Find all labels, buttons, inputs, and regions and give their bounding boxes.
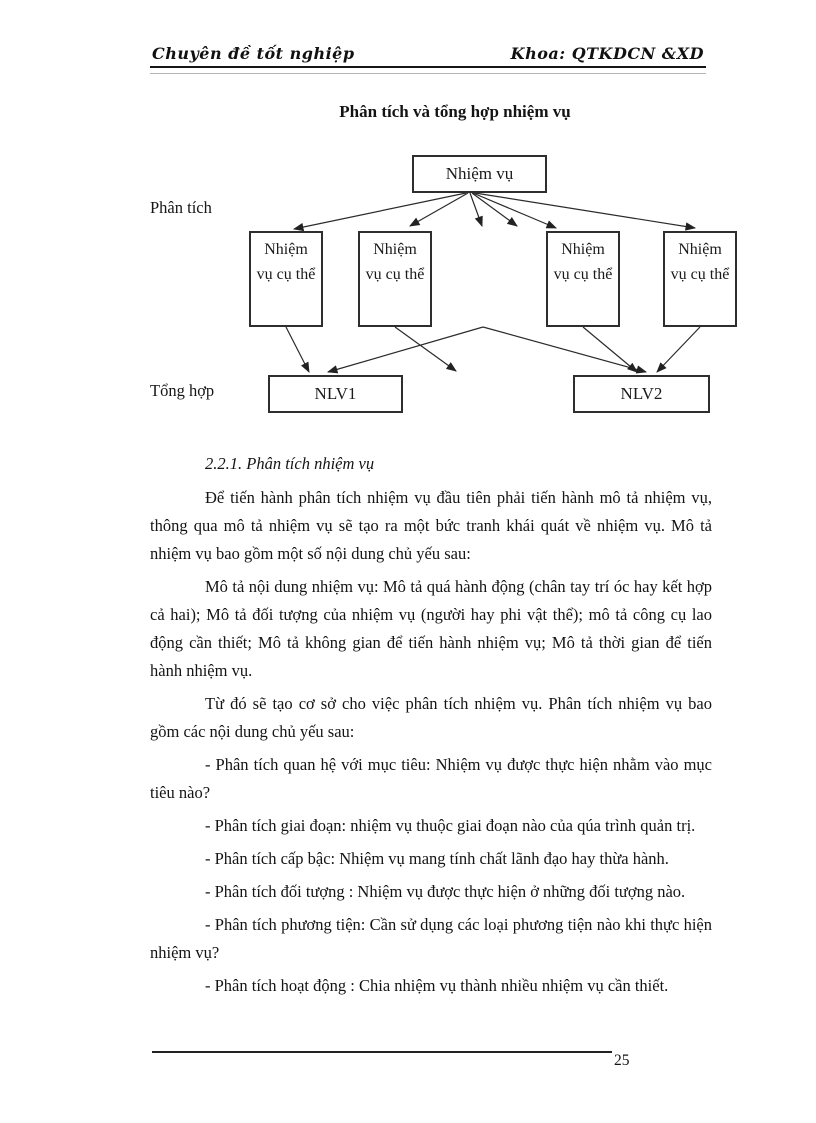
header-left-text: Chuyên đề tốt nghiệp xyxy=(152,44,355,63)
document-page: Chuyên đề tốt nghiệp Khoa: QTKDCN &XD Ph… xyxy=(0,0,816,1123)
box-nlv1: NLV1 xyxy=(268,375,403,413)
arrow-mid-to-nlv2 xyxy=(483,327,646,372)
box-nhiem-vu-cu-the-4: Nhiệm vụ cụ thể xyxy=(663,231,737,327)
paragraph: - Phân tích cấp bậc: Nhiệm vụ mang tính … xyxy=(150,845,712,873)
header-right-text: Khoa: QTKDCN &XD xyxy=(511,44,704,63)
paragraph: - Phân tích quan hệ với mục tiêu: Nhiệm … xyxy=(150,751,712,807)
task-analysis-diagram: Phân tích Tổng hợp Nhiệm vụ Nhiệm vụ cụ … xyxy=(0,140,816,430)
body-text: 2.2.1. Phân tích nhiệm vụ Để tiến hành p… xyxy=(150,450,712,1005)
figure-title: Phân tích và tổng hợp nhiệm vụ xyxy=(96,102,814,122)
paragraph: Để tiến hành phân tích nhiệm vụ đầu tiên… xyxy=(150,484,712,568)
paragraph: - Phân tích đối tượng : Nhiệm vụ được th… xyxy=(150,878,712,906)
box-nhiem-vu-cu-the-1: Nhiệm vụ cụ thể xyxy=(249,231,323,327)
arrow-root-to-sub3 xyxy=(473,193,556,228)
arrow-root-ellipsis-left xyxy=(470,193,482,226)
box-nlv2: NLV2 xyxy=(573,375,710,413)
arrow-root-ellipsis-right xyxy=(472,193,517,226)
paragraph: - Phân tích hoạt động : Chia nhiệm vụ th… xyxy=(150,972,712,1000)
box-nhiem-vu-cu-the-3: Nhiệm vụ cụ thể xyxy=(546,231,620,327)
arrow-mid-to-nlv1 xyxy=(328,327,483,372)
arrow-root-to-sub1 xyxy=(294,193,466,229)
paragraph: - Phân tích giai đoạn: nhiệm vụ thuộc gi… xyxy=(150,812,712,840)
label-phan-tich: Phân tích xyxy=(150,198,212,218)
box-nhiem-vu: Nhiệm vụ xyxy=(412,155,547,193)
footer-rule xyxy=(152,1051,612,1053)
arrow-sub1-to-nlv1 xyxy=(286,327,309,372)
page-header: Chuyên đề tốt nghiệp Khoa: QTKDCN &XD xyxy=(152,44,704,63)
section-heading: 2.2.1. Phân tích nhiệm vụ xyxy=(150,450,712,478)
box-nhiem-vu-cu-the-2: Nhiệm vụ cụ thể xyxy=(358,231,432,327)
arrow-sub4-to-nlv2 xyxy=(657,327,700,372)
label-tong-hop: Tổng hợp xyxy=(150,381,214,401)
paragraph: Từ đó sẽ tạo cơ sở cho việc phân tích nh… xyxy=(150,690,712,746)
paragraph: - Phân tích phương tiện: Cần sử dụng các… xyxy=(150,911,712,967)
header-rule xyxy=(150,66,706,74)
arrow-sub2-down xyxy=(395,327,456,371)
arrow-root-to-sub4 xyxy=(475,193,695,228)
arrow-sub3-to-nlv2 xyxy=(583,327,637,372)
paragraph: Mô tả nội dung nhiệm vụ: Mô tả quá hành … xyxy=(150,573,712,685)
page-number: 25 xyxy=(614,1052,630,1070)
arrow-root-to-sub2 xyxy=(410,193,468,226)
